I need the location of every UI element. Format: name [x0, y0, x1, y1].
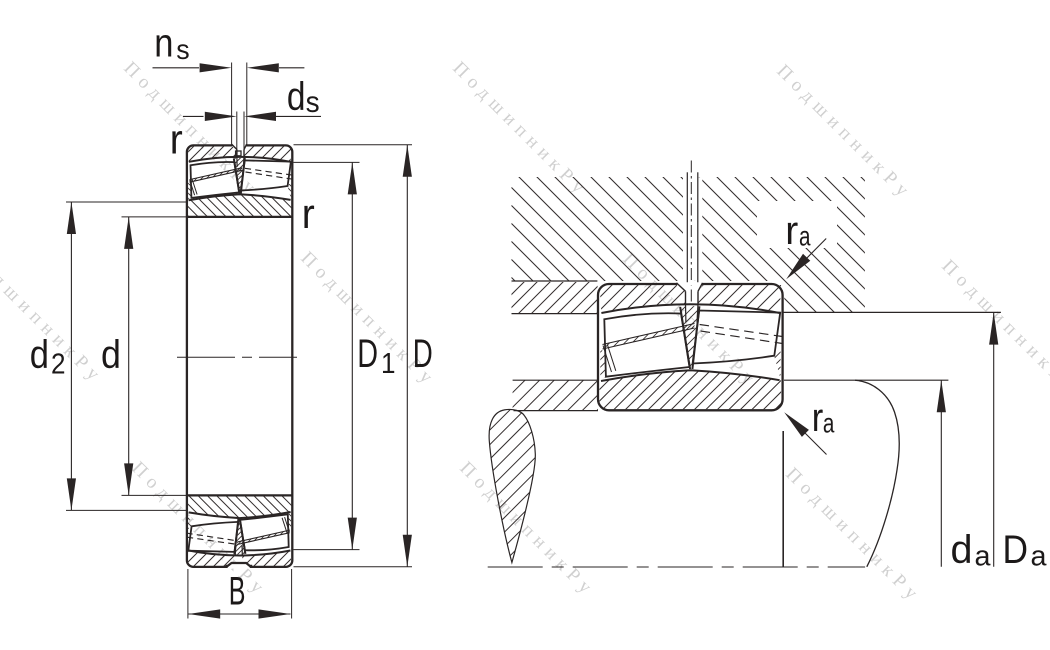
svg-text:r: r	[812, 396, 824, 440]
svg-text:d: d	[101, 333, 121, 377]
svg-text:s: s	[306, 86, 320, 119]
svg-text:r: r	[170, 116, 183, 163]
svg-text:n: n	[154, 22, 173, 66]
svg-text:D: D	[413, 332, 433, 376]
svg-text:B: B	[229, 570, 246, 614]
svg-text:s: s	[176, 34, 189, 65]
svg-text:r: r	[785, 209, 798, 253]
svg-text:a: a	[823, 408, 835, 439]
svg-text:d: d	[287, 75, 306, 119]
svg-text:D: D	[357, 332, 378, 376]
svg-text:2: 2	[51, 349, 66, 381]
svg-text:a: a	[1031, 541, 1048, 573]
svg-text:d: d	[951, 528, 973, 572]
svg-text:D: D	[1003, 528, 1029, 572]
svg-text:d: d	[30, 333, 49, 377]
svg-text:1: 1	[381, 348, 396, 380]
svg-text:r: r	[302, 190, 315, 237]
svg-text:a: a	[975, 541, 992, 573]
svg-text:a: a	[799, 221, 811, 252]
